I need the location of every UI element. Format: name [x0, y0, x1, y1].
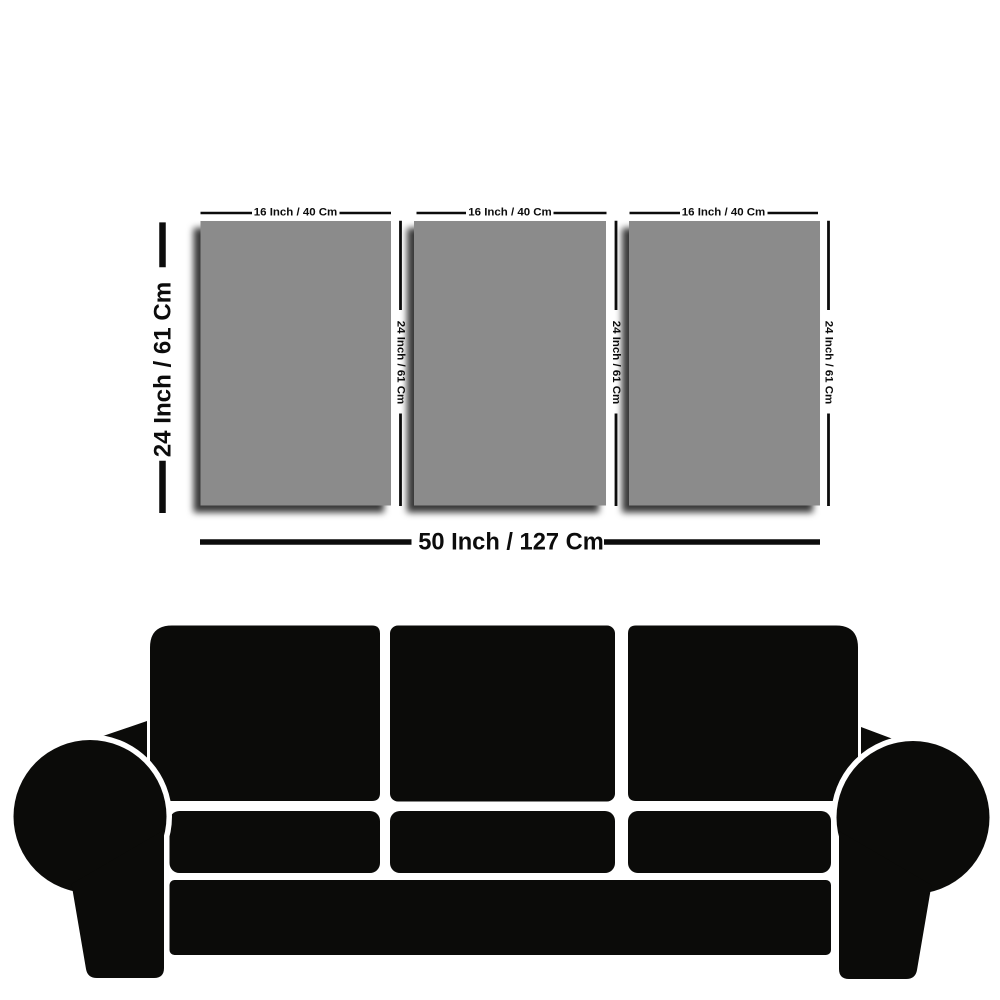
svg-text:24 Inch / 61 Cm: 24 Inch / 61 Cm — [823, 321, 835, 405]
svg-text:16 Inch / 40 Cm: 16 Inch / 40 Cm — [682, 207, 766, 219]
svg-text:24 Inch / 61 Cm: 24 Inch / 61 Cm — [610, 321, 622, 405]
svg-text:50 Inch / 127 Cm: 50 Inch / 127 Cm — [418, 529, 604, 556]
svg-text:16 Inch / 40 Cm: 16 Inch / 40 Cm — [254, 207, 338, 219]
svg-text:24 Inch / 61 Cm: 24 Inch / 61 Cm — [395, 321, 407, 405]
svg-text:16 Inch / 40 Cm: 16 Inch / 40 Cm — [468, 207, 552, 219]
svg-text:24 Inch / 61 Cm: 24 Inch / 61 Cm — [150, 282, 177, 458]
